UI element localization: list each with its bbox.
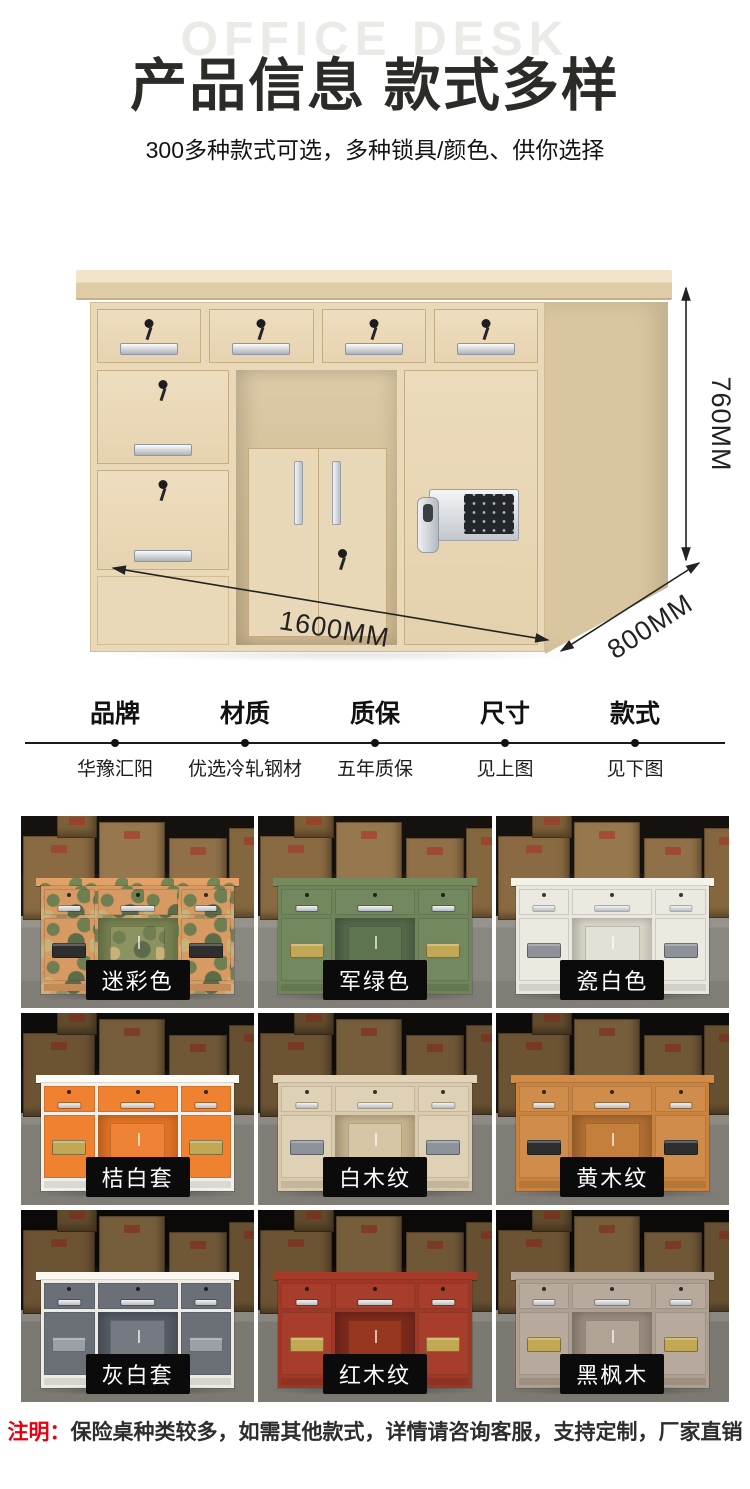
product-photo: 瓷白色 <box>496 816 729 1008</box>
gallery-item-orange-white: 桔白套 <box>21 1013 254 1205</box>
keypad-icon <box>426 943 460 958</box>
keypad-icon <box>189 943 223 958</box>
keypad-icon <box>189 1140 223 1155</box>
gallery-item-army-green: 军绿色 <box>258 816 491 1008</box>
product-photo: 红木纹 <box>258 1210 491 1402</box>
keypad-icon <box>290 1337 324 1352</box>
keypad-icon <box>664 1140 698 1155</box>
spec-warranty: 质保 五年质保 <box>310 692 440 792</box>
keypad-icon <box>52 1337 86 1352</box>
spec-value: 华豫汇阳 <box>50 754 180 781</box>
note-prefix: 注明： <box>8 1421 71 1444</box>
spec-label: 款式 <box>570 694 700 730</box>
gallery-item-gray-white: 灰白套 <box>21 1210 254 1402</box>
color-label: 迷彩色 <box>86 960 190 1000</box>
color-label: 白木纹 <box>323 1157 427 1197</box>
keypad-icon <box>426 1140 460 1155</box>
keypad-icon <box>426 1337 460 1352</box>
keypad-icon <box>527 943 561 958</box>
dot-marker <box>501 739 509 747</box>
color-label: 灰白套 <box>86 1354 190 1394</box>
color-label: 红木纹 <box>323 1354 427 1394</box>
gallery-item-red-woodgrain: 红木纹 <box>258 1210 491 1402</box>
product-photo: 桔白套 <box>21 1013 254 1205</box>
keypad-icon <box>189 1337 223 1352</box>
width-dimension-label: 1600MM <box>277 605 391 653</box>
gallery-item-white-woodgrain: 白木纹 <box>258 1013 491 1205</box>
spec-value: 优选冷轧钢材 <box>180 754 310 781</box>
page-subtitle: 300多种款式可选，多种锁具/颜色、供你选择 <box>0 131 750 165</box>
spec-value: 见上图 <box>440 754 570 781</box>
dimension-annotations: 760MM 1600MM 800MM <box>0 210 750 690</box>
spec-size: 尺寸 见上图 <box>440 692 570 792</box>
spec-strip: 品牌 华豫汇阳 材质 优选冷轧钢材 质保 五年质保 尺寸 见上图 款式 <box>0 692 750 792</box>
keypad-icon <box>290 943 324 958</box>
product-photo: 军绿色 <box>258 816 491 1008</box>
product-photo: 灰白套 <box>21 1210 254 1402</box>
spec-material: 材质 优选冷轧钢材 <box>180 692 310 792</box>
keypad-icon <box>52 1140 86 1155</box>
keypad-icon <box>664 943 698 958</box>
product-photo: 迷彩色 <box>21 816 254 1008</box>
gallery-item-yellow-woodgrain: 黄木纹 <box>496 1013 729 1205</box>
keypad-icon <box>527 1140 561 1155</box>
spec-label: 材质 <box>180 694 310 730</box>
hero-product-image: 760MM 1600MM 800MM <box>0 210 750 690</box>
spec-style: 款式 见下图 <box>570 692 700 792</box>
depth-dimension-label: 800MM <box>602 588 698 665</box>
dot-marker <box>111 739 119 747</box>
product-photo: 白木纹 <box>258 1013 491 1205</box>
color-label: 桔白套 <box>86 1157 190 1197</box>
gallery-item-black-maple: 黑枫木 <box>496 1210 729 1402</box>
footer-note: 注明：保险桌种类较多，如需其他款式，详情请咨询客服，支持定制，厂家直销 <box>0 1416 750 1446</box>
dot-marker <box>631 739 639 747</box>
dot-marker <box>371 739 379 747</box>
spec-value: 五年质保 <box>310 754 440 781</box>
keypad-icon <box>52 943 86 958</box>
height-dimension-label: 760MM <box>706 376 736 471</box>
spec-label: 尺寸 <box>440 694 570 730</box>
keypad-icon <box>290 1140 324 1155</box>
color-label: 军绿色 <box>323 960 427 1000</box>
spec-label: 质保 <box>310 694 440 730</box>
dot-marker <box>241 739 249 747</box>
color-label: 瓷白色 <box>560 960 664 1000</box>
color-label: 黄木纹 <box>560 1157 664 1197</box>
keypad-icon <box>664 1337 698 1352</box>
product-detail-page: OFFICE DESK 产品信息 款式多样 300多种款式可选，多种锁具/颜色、… <box>0 0 750 1489</box>
spec-brand: 品牌 华豫汇阳 <box>50 692 180 792</box>
page-title: 产品信息 款式多样 <box>0 40 750 122</box>
gallery-item-porcelain-white: 瓷白色 <box>496 816 729 1008</box>
product-photo: 黄木纹 <box>496 1013 729 1205</box>
spec-value: 见下图 <box>570 754 700 781</box>
product-photo: 黑枫木 <box>496 1210 729 1402</box>
gallery-item-camouflage: 迷彩色 <box>21 816 254 1008</box>
color-label: 黑枫木 <box>560 1354 664 1394</box>
color-variant-gallery: 迷彩色 军绿色 <box>21 816 729 1402</box>
note-text: 保险桌种类较多，如需其他款式，详情请咨询客服，支持定制，厂家直销 <box>71 1421 743 1444</box>
keypad-icon <box>527 1337 561 1352</box>
spec-label: 品牌 <box>50 694 180 730</box>
